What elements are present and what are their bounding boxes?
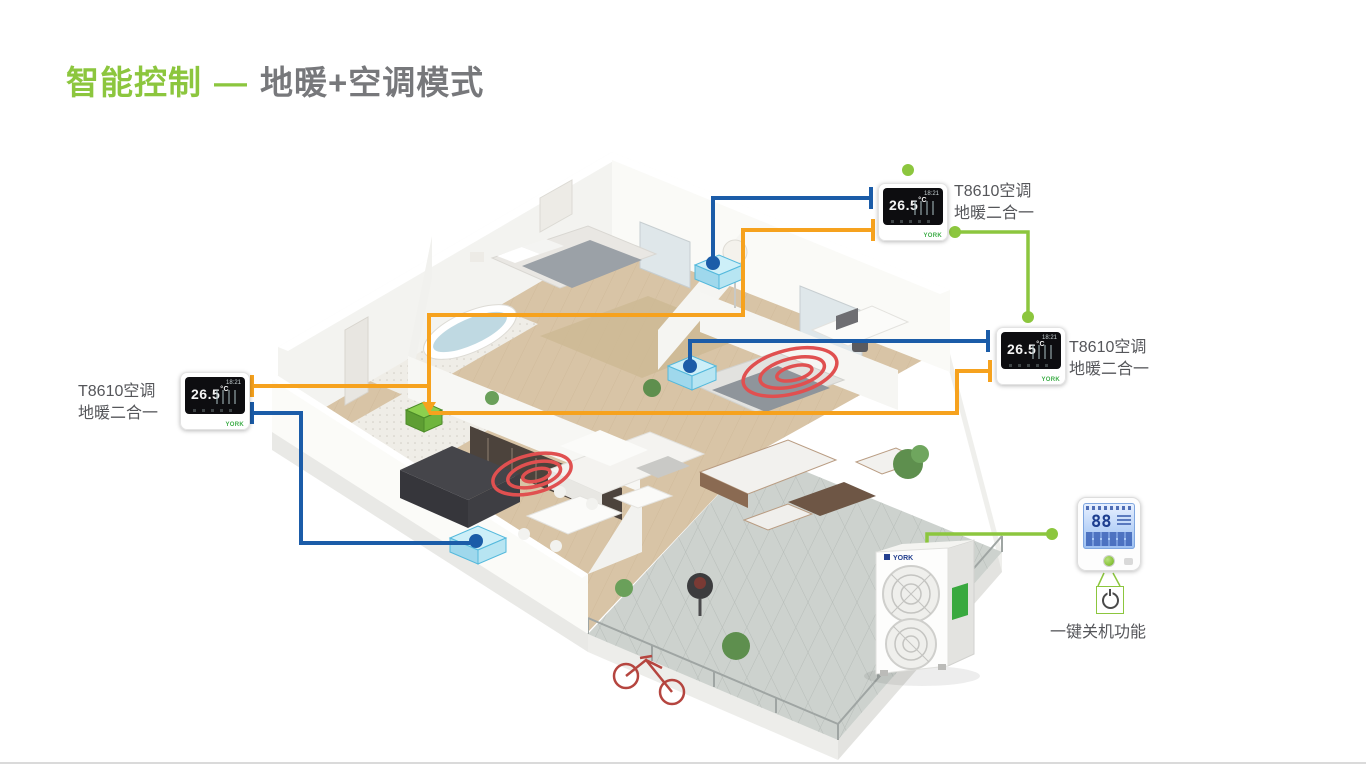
outdoor-unit: YORK — [864, 540, 980, 686]
outdoor-unit-brand: YORK — [893, 555, 913, 562]
power-callout — [1096, 586, 1124, 614]
thermostat-mode-icons — [1032, 345, 1056, 359]
thermostat-screen: 26.5°C 18:21 — [185, 377, 245, 414]
thermostat-time: 18:21 — [924, 191, 939, 197]
thermostat-brand: YORK — [225, 422, 244, 428]
controller-display: 88 — [1091, 512, 1111, 532]
thermostat-left: 26.5°C 18:21 YORK — [180, 372, 250, 430]
thermostat-brand: YORK — [1041, 377, 1060, 383]
wall-controller: 88 — [1077, 497, 1141, 571]
label-line2: 地暖二合一 — [954, 203, 1034, 225]
thermostat-top-label: T8610空调 地暖二合一 — [954, 181, 1034, 224]
thermostat-mode-icons — [216, 390, 240, 404]
thermostat-brand: YORK — [923, 233, 942, 239]
label-line2: 地暖二合一 — [1069, 359, 1149, 381]
label-line1: T8610空调 — [954, 181, 1034, 203]
thermostat-mode-icons — [914, 201, 938, 215]
green-dot — [1046, 528, 1058, 540]
controller-key — [1124, 558, 1133, 565]
green-line-thermostats — [955, 232, 1028, 314]
slide: 智能控制—地暖+空调模式 — [0, 0, 1366, 764]
lcd-status-icons — [1086, 506, 1132, 510]
controller-label: 一键关机功能 — [1050, 622, 1146, 644]
controller-lcd: 88 — [1083, 503, 1135, 549]
green-dot — [1022, 311, 1034, 323]
thermostat-screen: 26.5°C 18:21 — [883, 188, 943, 225]
label-line2: 地暖二合一 — [78, 403, 158, 425]
thermostat-touch-keys — [891, 220, 935, 223]
thermostat-screen: 26.5°C 18:21 — [1001, 332, 1061, 369]
thermostat-left-label: T8610空调 地暖二合一 — [78, 381, 158, 424]
label-line1: T8610空调 — [1069, 337, 1149, 359]
thermostat-time: 18:21 — [1042, 335, 1057, 341]
green-sticker — [952, 583, 968, 620]
power-icon — [1102, 592, 1119, 609]
thermostat-top: 26.5°C 18:21 YORK — [878, 183, 948, 241]
thermostat-touch-keys — [193, 409, 237, 412]
green-dot — [949, 226, 961, 238]
mirror — [345, 317, 368, 405]
thermostat-touch-keys — [1009, 364, 1053, 367]
label-line1: T8610空调 — [78, 381, 158, 403]
thermostat-right: 26.5°C 18:21 YORK — [996, 327, 1066, 385]
thermostat-right-label: T8610空调 地暖二合一 — [1069, 337, 1149, 380]
lcd-button-grid — [1086, 532, 1132, 546]
power-button — [1104, 556, 1114, 566]
green-dot — [902, 164, 914, 176]
thermostat-time: 18:21 — [226, 380, 241, 386]
lcd-side-icons — [1117, 513, 1131, 525]
